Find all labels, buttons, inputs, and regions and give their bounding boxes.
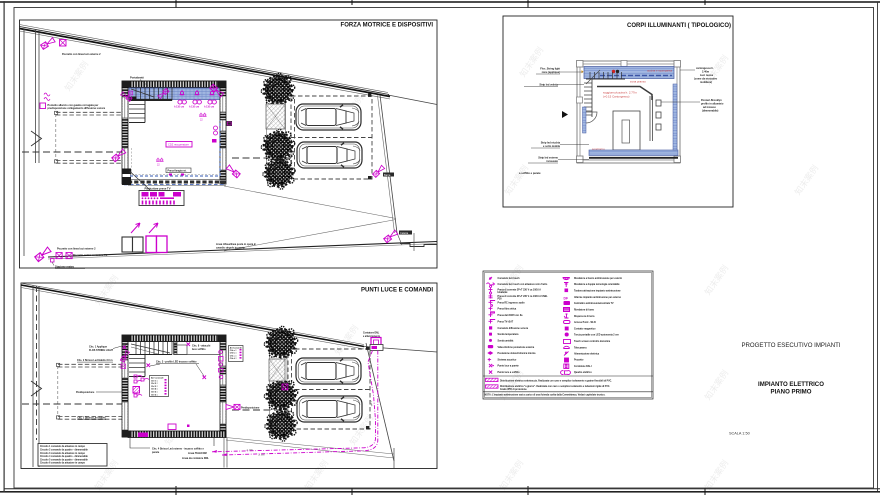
svg-text:Presa TV+SAT: Presa TV+SAT [498,321,514,324]
svg-text:Circuito 3 comando da attuator: Circuito 3 comando da attuatore in campo [40,452,86,455]
svg-text:Presa flangia est.: Presa flangia est. [168,170,187,173]
svg-text:Chl 6 □: Chl 6 □ [151,393,159,396]
svg-text:Punto luce a parete: Punto luce a parete [498,365,520,368]
svg-text:Rivelatore a fascio antintrusi: Rivelatore a fascio antintrusione per es… [574,277,622,280]
svg-text:mobiliere): mobiliere) [700,81,712,84]
svg-text:Chs. 3 - profilo LED incasso s: Chs. 3 - profilo LED incasso soffitto [156,361,197,364]
svg-text:Strip led veletta: Strip led veletta [539,84,558,87]
svg-text:Pozzetto: Pozzetto [574,359,584,362]
svg-text:+1 mM: +1 mM [246,450,253,452]
svg-text:Centralino antintrusione/centr: Centralino antintrusione/centrale TV [574,302,614,305]
svg-text:Barra: Barra [384,173,391,177]
svg-text:Distribuzione elettrica sottot: Distribuzione elettrica sottotraccia. Re… [500,379,612,382]
svg-text:Telecamera: Telecamera [574,347,587,349]
svg-text:Comando diffusione sonora: Comando diffusione sonora [498,328,529,330]
svg-text:(dimmerabile): (dimmerabile) [702,110,719,113]
svg-text:Pozzetto con linea luci estern: Pozzetto con linea luci esterne 2 [62,53,101,56]
svg-text:Contatto magnetico: Contatto magnetico [574,327,596,330]
svg-text:Presa RC ingresso audio: Presa RC ingresso audio [498,302,526,304]
svg-text:Tastiera attivazione impianto: Tastiera attivazione impianto antintrusi… [574,289,621,292]
svg-text:Comando luci touch: Comando luci touch [498,277,521,280]
svg-text:Presa fibra ottica: Presa fibra ottica [498,308,517,311]
svg-text:Rivelatore a doppia tecnologia: Rivelatore a doppia tecnologia orientabi… [574,283,620,286]
svg-text:parete: parete [152,451,160,454]
svg-text:Chl 1 □: Chl 1 □ [151,379,159,382]
svg-text:+1 mM: +1 mM [258,455,265,457]
svg-text:Chl c □: Chl c □ [230,354,237,357]
svg-text:Att Comandi: Att Comandi [151,377,164,380]
svg-text:Circuito 2 comando da quadro -: Circuito 2 comando da quadro - dimmerabi… [40,449,89,452]
svg-text:SCALA 1:50: SCALA 1:50 [729,432,750,436]
svg-text:incassato: incassato [546,160,558,163]
svg-text:Circuito 4 comando da quadro -: Circuito 4 comando da quadro - dimmerabi… [40,455,89,458]
svg-text:PIANO PRIMO: PIANO PRIMO [771,389,812,396]
svg-text:Chs. 2 Strisce Led Habits 3.0: Chs. 2 Strisce Led Habits 3.0 m [77,359,112,362]
svg-text:Predisposizione: Predisposizione [76,391,95,394]
svg-text:Chs. 4 Strisce Led esterno - i: Chs. 4 Strisce Led esterno - incasso sof… [152,448,204,451]
svg-text:Quadro elettrico: Quadro elettrico [574,371,592,374]
svg-text:PUNTI LUCE E COMANDI: PUNTI LUCE E COMANDI [361,288,433,294]
svg-text:DF: DF [564,296,569,300]
svg-text:NOTA: L'impianto antintrusione: NOTA: L'impianto antintrusione sarà a ca… [485,393,606,396]
svg-text:Distribuzione elettrica "a gio: Distribuzione elettrica "a giorno". Real… [500,385,610,388]
svg-text:h 110 cm: h 110 cm [204,106,214,109]
svg-text:Linea TELECOM: Linea TELECOM [188,452,207,455]
svg-text:a soffitto e parete: a soffitto e parete [519,171,541,175]
svg-text:CDZ recuperatore: CDZ recuperatore [168,143,189,147]
svg-text:Rivelatore di fumo: Rivelatore di fumo [574,309,595,312]
svg-text:Circuito 5 comando da quadro -: Circuito 5 comando da quadro - dimmerabi… [40,458,89,461]
svg-text:cavedio singolo in parete: cavedio singolo in parete [216,246,245,249]
svg-text:Alimentazione elettrica: Alimentazione elettrica [574,352,600,355]
svg-text:Chl 5 □: Chl 5 □ [151,391,159,394]
svg-text:(+0.15 Cartongesso): (+0.15 Cartongesso) [603,95,629,99]
svg-text:IMPIANTO ELETTRICO: IMPIANTO ELETTRICO [758,381,824,388]
svg-text:Sonda umidità: Sonda umidità [498,339,515,342]
svg-text:predisposizione collegamento d: predisposizione collegamento diffusione … [48,107,106,110]
svg-text:Touch screen controllo domotic: Touch screen controllo domotica [574,340,611,343]
svg-text:Circuito 1 comando da attuator: Circuito 1 comando da attuatore in campo [40,445,86,448]
svg-text:Particolare prese TV: Particolare prese TV [145,187,171,191]
svg-text:Circuito 6 comando da attuator: Circuito 6 comando da attuatore in campo [40,462,86,465]
svg-text:Access Point - Wi-Fi: Access Point - Wi-Fi [574,321,596,324]
svg-text:bivalente: bivalente [498,291,509,294]
svg-text:Punto luce a soffitto: Punto luce a soffitto [498,371,521,374]
svg-text:Dispersore di terra: Dispersore di terra [574,315,595,318]
svg-text:Cordolone DALI: Cordolone DALI [574,365,592,368]
svg-text:Allarme impianto antintrusione: Allarme impianto antintrusione per ester… [574,296,622,299]
svg-text:Att Comandi: Att Comandi [230,346,242,349]
svg-text:luce soffitto: luce soffitto [192,348,206,351]
svg-text:Contatore DNL: Contatore DNL [363,332,380,335]
svg-text:h 110 cm: h 110 cm [189,106,199,109]
svg-text:Pozzetto con linea luci estern: Pozzetto con linea luci esterne 2 [57,248,96,251]
svg-text:Portafaretti: Portafaretti [130,76,144,80]
svg-text:zona pranzo: zona pranzo [630,80,646,84]
svg-text:Pozzetto antico contatore TX: Pozzetto antico contatore TX [73,254,108,257]
svg-text:Caletta: Caletta [400,231,409,235]
svg-text:Chl d □: Chl d □ [230,357,238,360]
svg-text:Sonda temperatura: Sonda temperatura [498,333,520,336]
svg-text:CORPI ILLUMINANTI ( TIPOLOGICO: CORPI ILLUMINANTI ( TIPOLOGICO) [627,23,731,29]
svg-text:FORZA MOTRICE E DISPOSITIVI: FORZA MOTRICE E DISPOSITIVI [341,23,434,29]
svg-text:e sotto mobile: e sotto mobile [543,145,561,148]
svg-text:Videocitofono postazione ester: Videocitofono postazione esterna [498,346,535,349]
svg-text:h 110 cm: h 110 cm [174,106,184,109]
svg-text:Presa dati RJ45 cat. 6a: Presa dati RJ45 cat. 6a [498,314,524,317]
svg-text:Postazione videocitofonica int: Postazione videocitofonica interna [498,352,537,355]
svg-text:Chl 2 □: Chl 2 □ [151,382,159,385]
svg-text:Chl b □: Chl b □ [230,352,238,355]
svg-text:Presa di corrente 2P+T 230 V c: Presa di corrente 2P+T 230 V ca 10/16 A [498,288,542,291]
svg-text:zone (applique): zone (applique) [542,71,561,74]
svg-text:Predisposizione: Predisposizione [241,407,260,410]
svg-text:Torcia portatile con LED auton: Torcia portatile con LED autonomia 2 ore [574,334,619,337]
svg-text:Linea da contatore DNL: Linea da contatore DNL [182,457,209,460]
svg-text:FLOS STRING LIGHT: FLOS STRING LIGHT [89,349,113,352]
svg-text:Presa di corrente 2P+T 230 V c: Presa di corrente 2P+T 230 V ca 10/16 A … [498,295,549,298]
svg-text:P30: P30 [498,299,503,301]
svg-text:Chs. 2 Strisce Led Habits: Chs. 2 Strisce Led Habits [77,417,106,420]
svg-text:Stazione meteo: Stazione meteo [55,265,74,269]
svg-text:Sistema acustico: Sistema acustico [498,358,517,361]
svg-text:Comando luci touch con attuato: Comando luci touch con attuatore retro f… [498,283,548,286]
svg-text:Chl 3 □: Chl 3 □ [151,385,159,388]
svg-text:cucina e scomparsa: cucina e scomparsa [647,69,672,73]
svg-text:PROGETTO ESECUTIVO IMPIANTI: PROGETTO ESECUTIVO IMPIANTI [741,342,840,349]
svg-text:Chl a □: Chl a □ [230,349,237,352]
svg-text:Grado IP55 di protezione.: Grado IP55 di protezione. [500,388,528,391]
svg-text:Chl 4 □: Chl 4 □ [151,388,159,391]
